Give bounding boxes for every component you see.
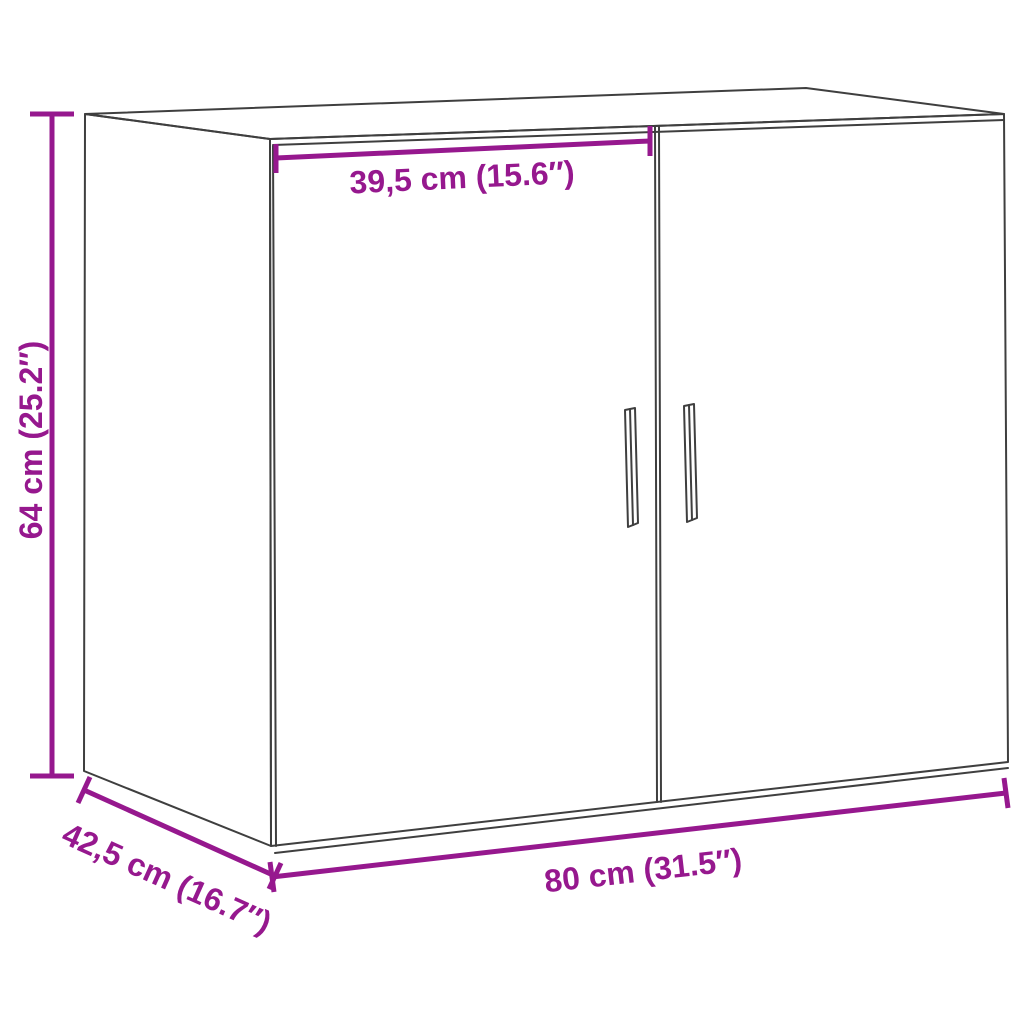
dimension-lines <box>30 114 1008 892</box>
dimension-labels: 39,5 cm (15.6″) 64 cm (25.2″) 42,5 cm (1… <box>13 154 743 941</box>
dimension-cap-width-right <box>1004 778 1008 808</box>
dimension-label-door-width: 39,5 cm (15.6″) <box>349 154 576 201</box>
product-dimension-diagram: 39,5 cm (15.6″) 64 cm (25.2″) 42,5 cm (1… <box>0 0 1024 1024</box>
cabinet-left-panel <box>84 114 271 846</box>
cabinet-bottom-inner-edge <box>275 768 1008 853</box>
dimension-diagram-svg: 39,5 cm (15.6″) 64 cm (25.2″) 42,5 cm (1… <box>0 0 1024 1024</box>
cabinet-outline <box>84 88 1008 853</box>
door-handle-right <box>684 404 697 522</box>
door-gap-left-line <box>655 127 657 802</box>
door-gap-right-line <box>659 127 661 802</box>
cabinet-front-face <box>270 114 1008 846</box>
door-handle-left <box>625 408 638 527</box>
dimension-label-height: 64 cm (25.2″) <box>13 341 49 540</box>
dimension-label-width: 80 cm (31.5″) <box>542 841 743 899</box>
cabinet-top-face <box>85 88 1004 139</box>
left-door-inner-edge <box>273 146 276 846</box>
